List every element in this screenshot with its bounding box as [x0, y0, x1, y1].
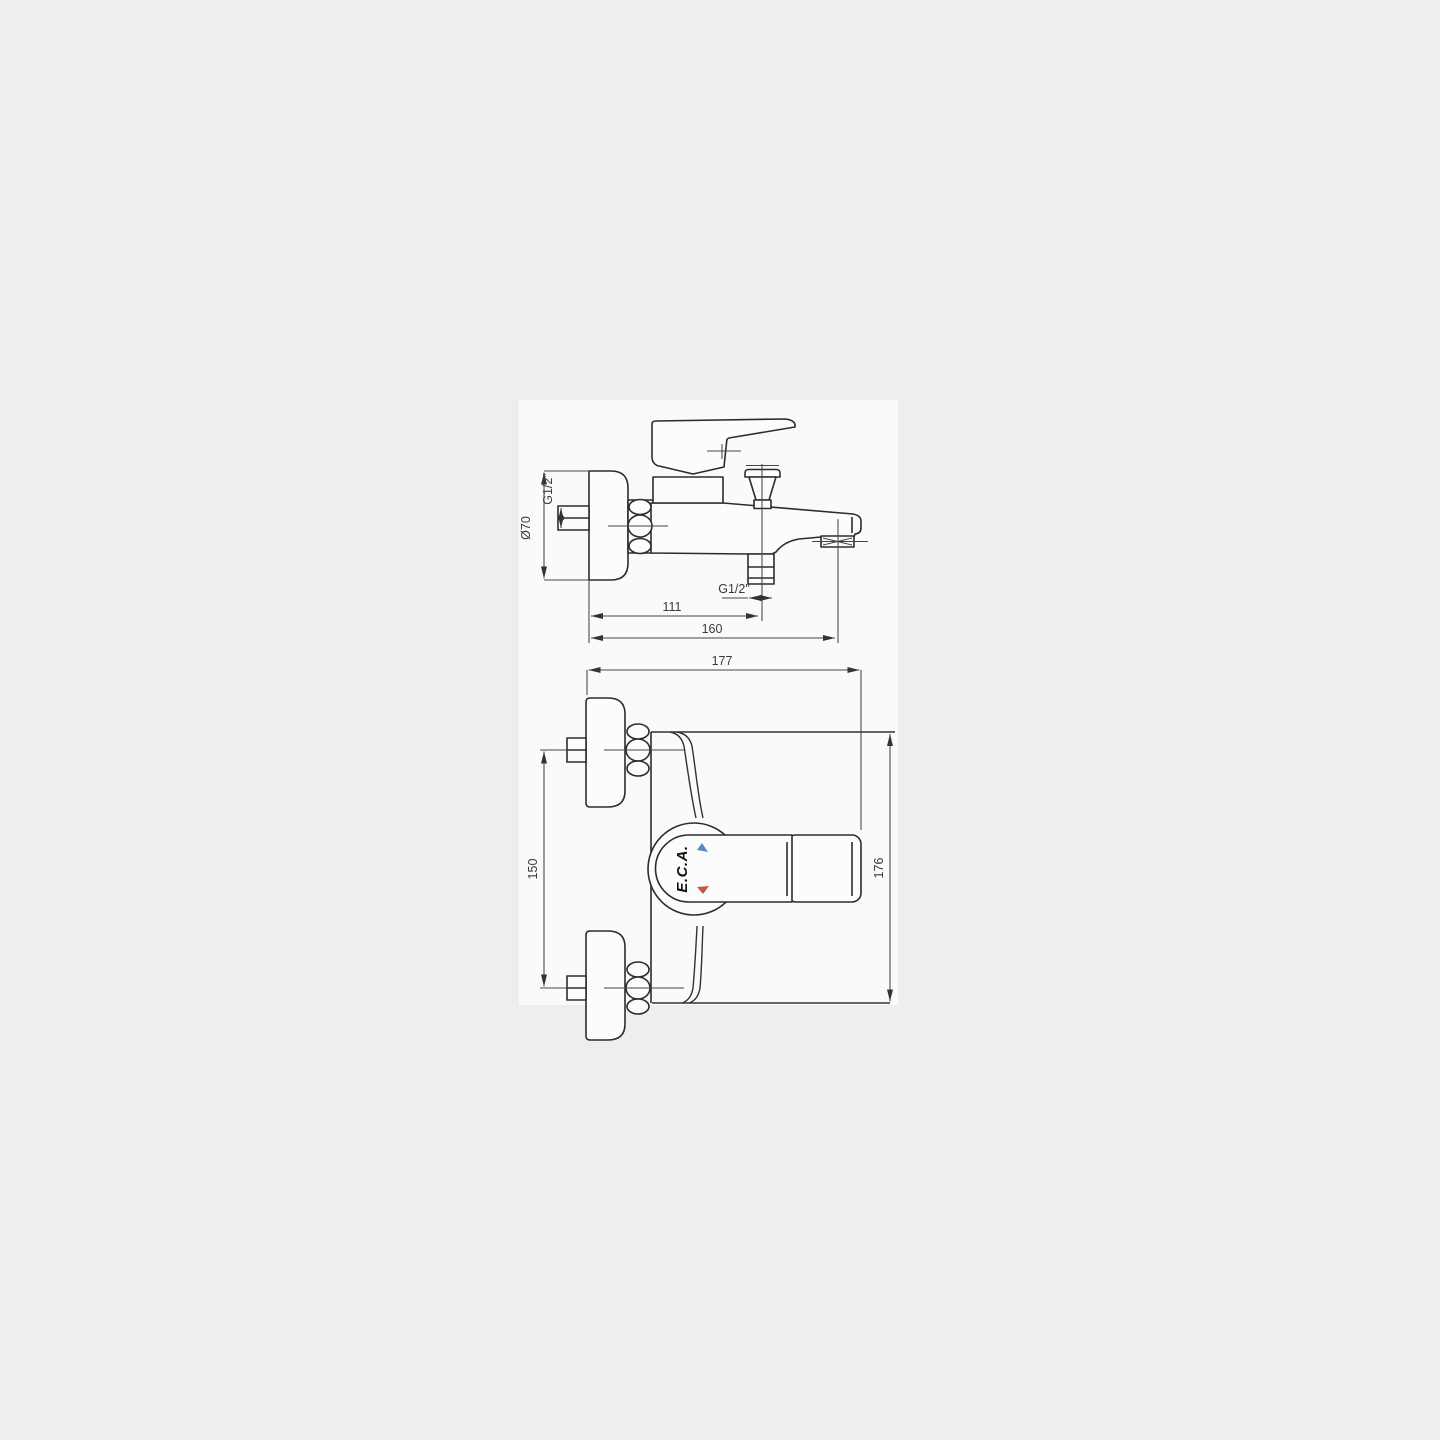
side-shower-outlet	[748, 554, 774, 584]
rosette-ellipse	[629, 500, 651, 515]
front-wall-plate-top	[586, 698, 625, 807]
rosette-ellipse	[629, 539, 651, 554]
dim-label-111: 111	[662, 600, 681, 614]
rosette-ellipse	[627, 724, 649, 739]
rosette-ellipse	[627, 999, 649, 1014]
front-wall-plate-bottom	[586, 931, 625, 1040]
dim-label-150: 150	[526, 859, 540, 880]
shower-outlet-body	[748, 554, 774, 584]
dim-label-176: 176	[872, 858, 886, 879]
handle-end-knob	[787, 835, 861, 902]
dim-label-dia70: Ø70	[519, 516, 533, 540]
brand-logo-eca: E.C.A.	[674, 845, 691, 892]
rosette-ellipse	[627, 761, 649, 776]
dim-label-177: 177	[712, 654, 733, 668]
dim-label-160: 160	[702, 622, 723, 636]
side-valve-body	[653, 477, 723, 503]
rosette-ellipse	[627, 962, 649, 977]
faucet-technical-drawing: Ø70 G1/2" G1/2" 111 160	[0, 0, 1440, 1440]
dim-label-g12-inlet: G1/2"	[541, 473, 555, 505]
dim-label-g12-shower: G1/2"	[718, 582, 750, 596]
